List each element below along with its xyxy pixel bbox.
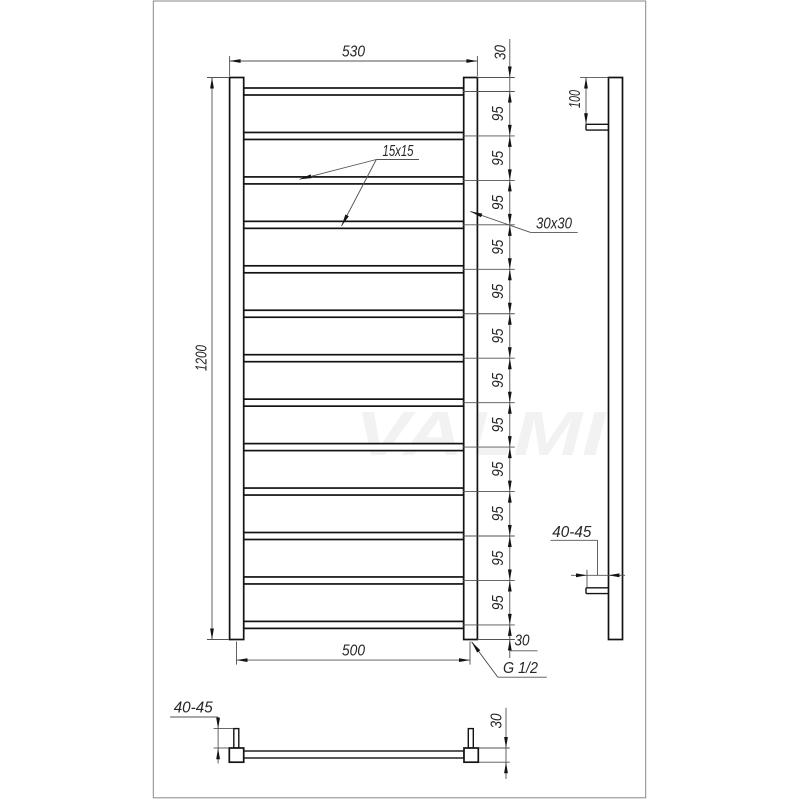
svg-text:95: 95 xyxy=(490,595,507,610)
svg-text:15x15: 15x15 xyxy=(383,143,414,160)
svg-text:100: 100 xyxy=(567,90,584,108)
svg-text:40-45: 40-45 xyxy=(552,524,591,541)
svg-text:95: 95 xyxy=(490,151,507,166)
svg-text:40-45: 40-45 xyxy=(174,700,213,717)
svg-text:95: 95 xyxy=(490,284,507,299)
svg-text:1200: 1200 xyxy=(193,345,210,371)
svg-text:500: 500 xyxy=(342,643,365,660)
svg-text:95: 95 xyxy=(490,551,507,566)
svg-text:30: 30 xyxy=(488,713,505,728)
svg-text:G 1/2: G 1/2 xyxy=(503,660,538,677)
svg-text:530: 530 xyxy=(342,44,365,61)
svg-text:VALMI: VALMI xyxy=(355,400,607,469)
svg-text:95: 95 xyxy=(490,373,507,388)
svg-text:95: 95 xyxy=(490,195,507,210)
svg-text:95: 95 xyxy=(490,462,507,477)
svg-text:95: 95 xyxy=(490,506,507,521)
svg-text:95: 95 xyxy=(490,240,507,255)
svg-text:95: 95 xyxy=(490,417,507,432)
svg-text:30: 30 xyxy=(515,633,530,650)
svg-text:95: 95 xyxy=(490,106,507,121)
svg-text:30: 30 xyxy=(492,45,509,60)
svg-text:30x30: 30x30 xyxy=(536,216,572,233)
svg-text:95: 95 xyxy=(490,328,507,343)
